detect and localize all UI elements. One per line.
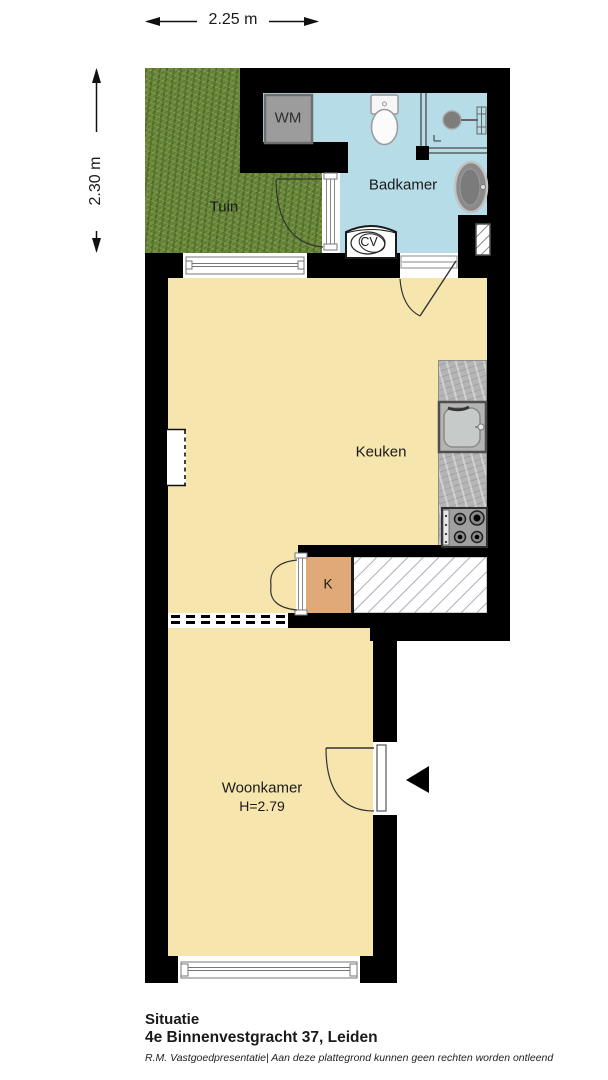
wall-niche <box>167 429 186 486</box>
shower-head-icon <box>477 107 486 134</box>
entrance-arrow-icon <box>406 766 429 793</box>
width-dimension-label: 2.25 m <box>209 11 258 29</box>
stove <box>442 508 487 547</box>
duct-shaft <box>476 224 490 255</box>
badkamer-label: Badkamer <box>369 177 437 194</box>
tuin-window <box>183 253 307 278</box>
ceiling-height-label: H=2.79 <box>239 798 285 814</box>
passage-dashed-opening <box>171 617 287 623</box>
woonkamer-label: Woonkamer <box>222 780 303 797</box>
height-dimension-label: 2.30 m <box>87 157 105 206</box>
entrance-door <box>326 742 397 815</box>
shower-tap-icon <box>434 135 441 141</box>
boiler-label: CV <box>360 235 377 249</box>
plan-title: Situatie <box>145 1011 199 1028</box>
tuin-door <box>276 173 339 250</box>
washing-machine-label: WM <box>275 110 302 127</box>
shower <box>416 93 487 160</box>
plan-address: 4e Binnenvestgracht 37, Leiden <box>145 1029 378 1047</box>
keuken-label: Keuken <box>356 444 407 461</box>
kitchen-sink <box>439 402 486 452</box>
toilet <box>371 95 398 145</box>
floorplan-canvas: Tuin Badkamer Keuken Woonkamer H=2.79 WM… <box>0 0 608 1080</box>
shower-drain-icon <box>443 111 461 129</box>
closet-label: K <box>323 577 332 592</box>
woonkamer-window <box>178 956 360 983</box>
washbasin <box>455 162 487 212</box>
closet-doors <box>271 553 307 615</box>
void-hatched-area <box>353 557 487 613</box>
tuin-label: Tuin <box>210 199 239 216</box>
badkamer-door <box>400 253 458 316</box>
plan-disclaimer: R.M. Vastgoedpresentatie| Aan deze platt… <box>145 1052 553 1064</box>
